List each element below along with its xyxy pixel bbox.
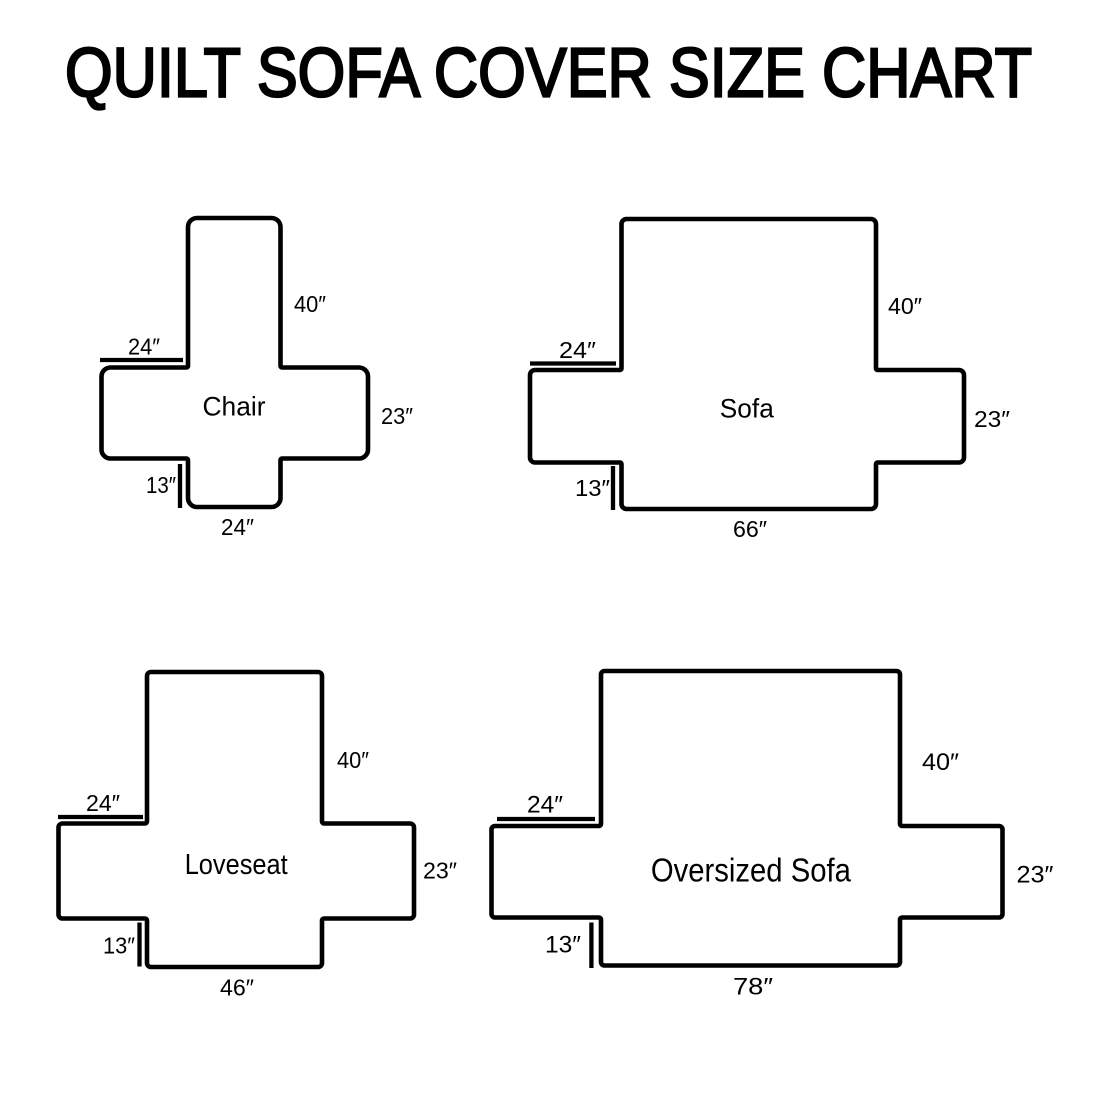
svg-text:13″: 13″ xyxy=(146,472,176,498)
svg-text:13″: 13″ xyxy=(545,932,581,959)
svg-text:40″: 40″ xyxy=(337,747,369,773)
svg-text:46″: 46″ xyxy=(220,975,254,1001)
svg-text:40″: 40″ xyxy=(888,293,922,319)
svg-text:23″: 23″ xyxy=(423,858,457,884)
svg-text:24″: 24″ xyxy=(128,334,160,360)
svg-text:23″: 23″ xyxy=(974,406,1010,432)
svg-text:24″: 24″ xyxy=(527,791,563,818)
svg-text:Loveseat: Loveseat xyxy=(185,849,288,881)
svg-text:23″: 23″ xyxy=(381,403,413,429)
svg-text:Sofa: Sofa xyxy=(720,394,775,424)
svg-text:24″: 24″ xyxy=(221,514,254,540)
svg-text:24″: 24″ xyxy=(559,337,596,363)
svg-text:40″: 40″ xyxy=(922,749,959,776)
svg-text:Chair: Chair xyxy=(203,391,266,421)
svg-text:40″: 40″ xyxy=(294,291,326,317)
svg-text:66″: 66″ xyxy=(733,516,767,542)
svg-text:24″: 24″ xyxy=(86,790,120,816)
svg-text:13″: 13″ xyxy=(575,475,610,501)
svg-text:78″: 78″ xyxy=(733,974,773,1001)
svg-text:Oversized Sofa: Oversized Sofa xyxy=(651,851,852,888)
svg-text:QUILT SOFA COVER SIZE CHART: QUILT SOFA COVER SIZE CHART xyxy=(65,34,1032,112)
svg-text:23″: 23″ xyxy=(1017,862,1054,889)
svg-text:13″: 13″ xyxy=(103,933,135,959)
